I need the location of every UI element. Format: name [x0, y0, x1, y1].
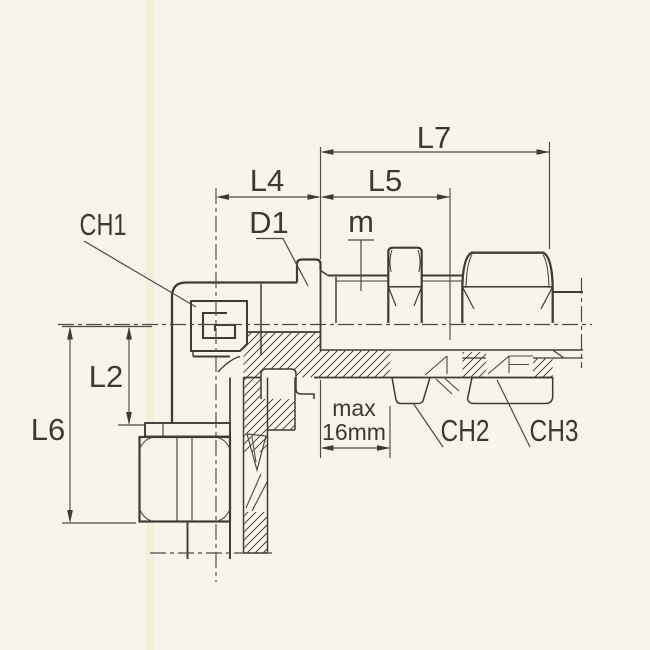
ch1-hex-face	[191, 301, 247, 351]
label-ch3: CH3	[530, 413, 579, 448]
label-l6: L6	[31, 412, 65, 447]
label-ch2: CH2	[441, 413, 490, 448]
label-ch1: CH1	[80, 207, 127, 242]
label-l2: L2	[89, 359, 123, 394]
label-m: m	[348, 204, 374, 239]
label-max-wall-line2: 16mm	[322, 419, 386, 445]
technical-drawing-page: CH1 D1 m L4 L5 L7 L2 L6 max 16mm CH2 CH3	[0, 0, 650, 650]
label-l7: L7	[417, 120, 451, 155]
label-l4: L4	[250, 163, 284, 198]
bottom-flange	[145, 423, 230, 437]
bulkhead-elbow-fitting-drawing: CH1 D1 m L4 L5 L7 L2 L6 max 16mm CH2 CH3	[0, 0, 650, 650]
label-d1: D1	[249, 205, 289, 240]
label-l5: L5	[368, 163, 402, 198]
label-max-wall-line1: max	[332, 395, 376, 421]
